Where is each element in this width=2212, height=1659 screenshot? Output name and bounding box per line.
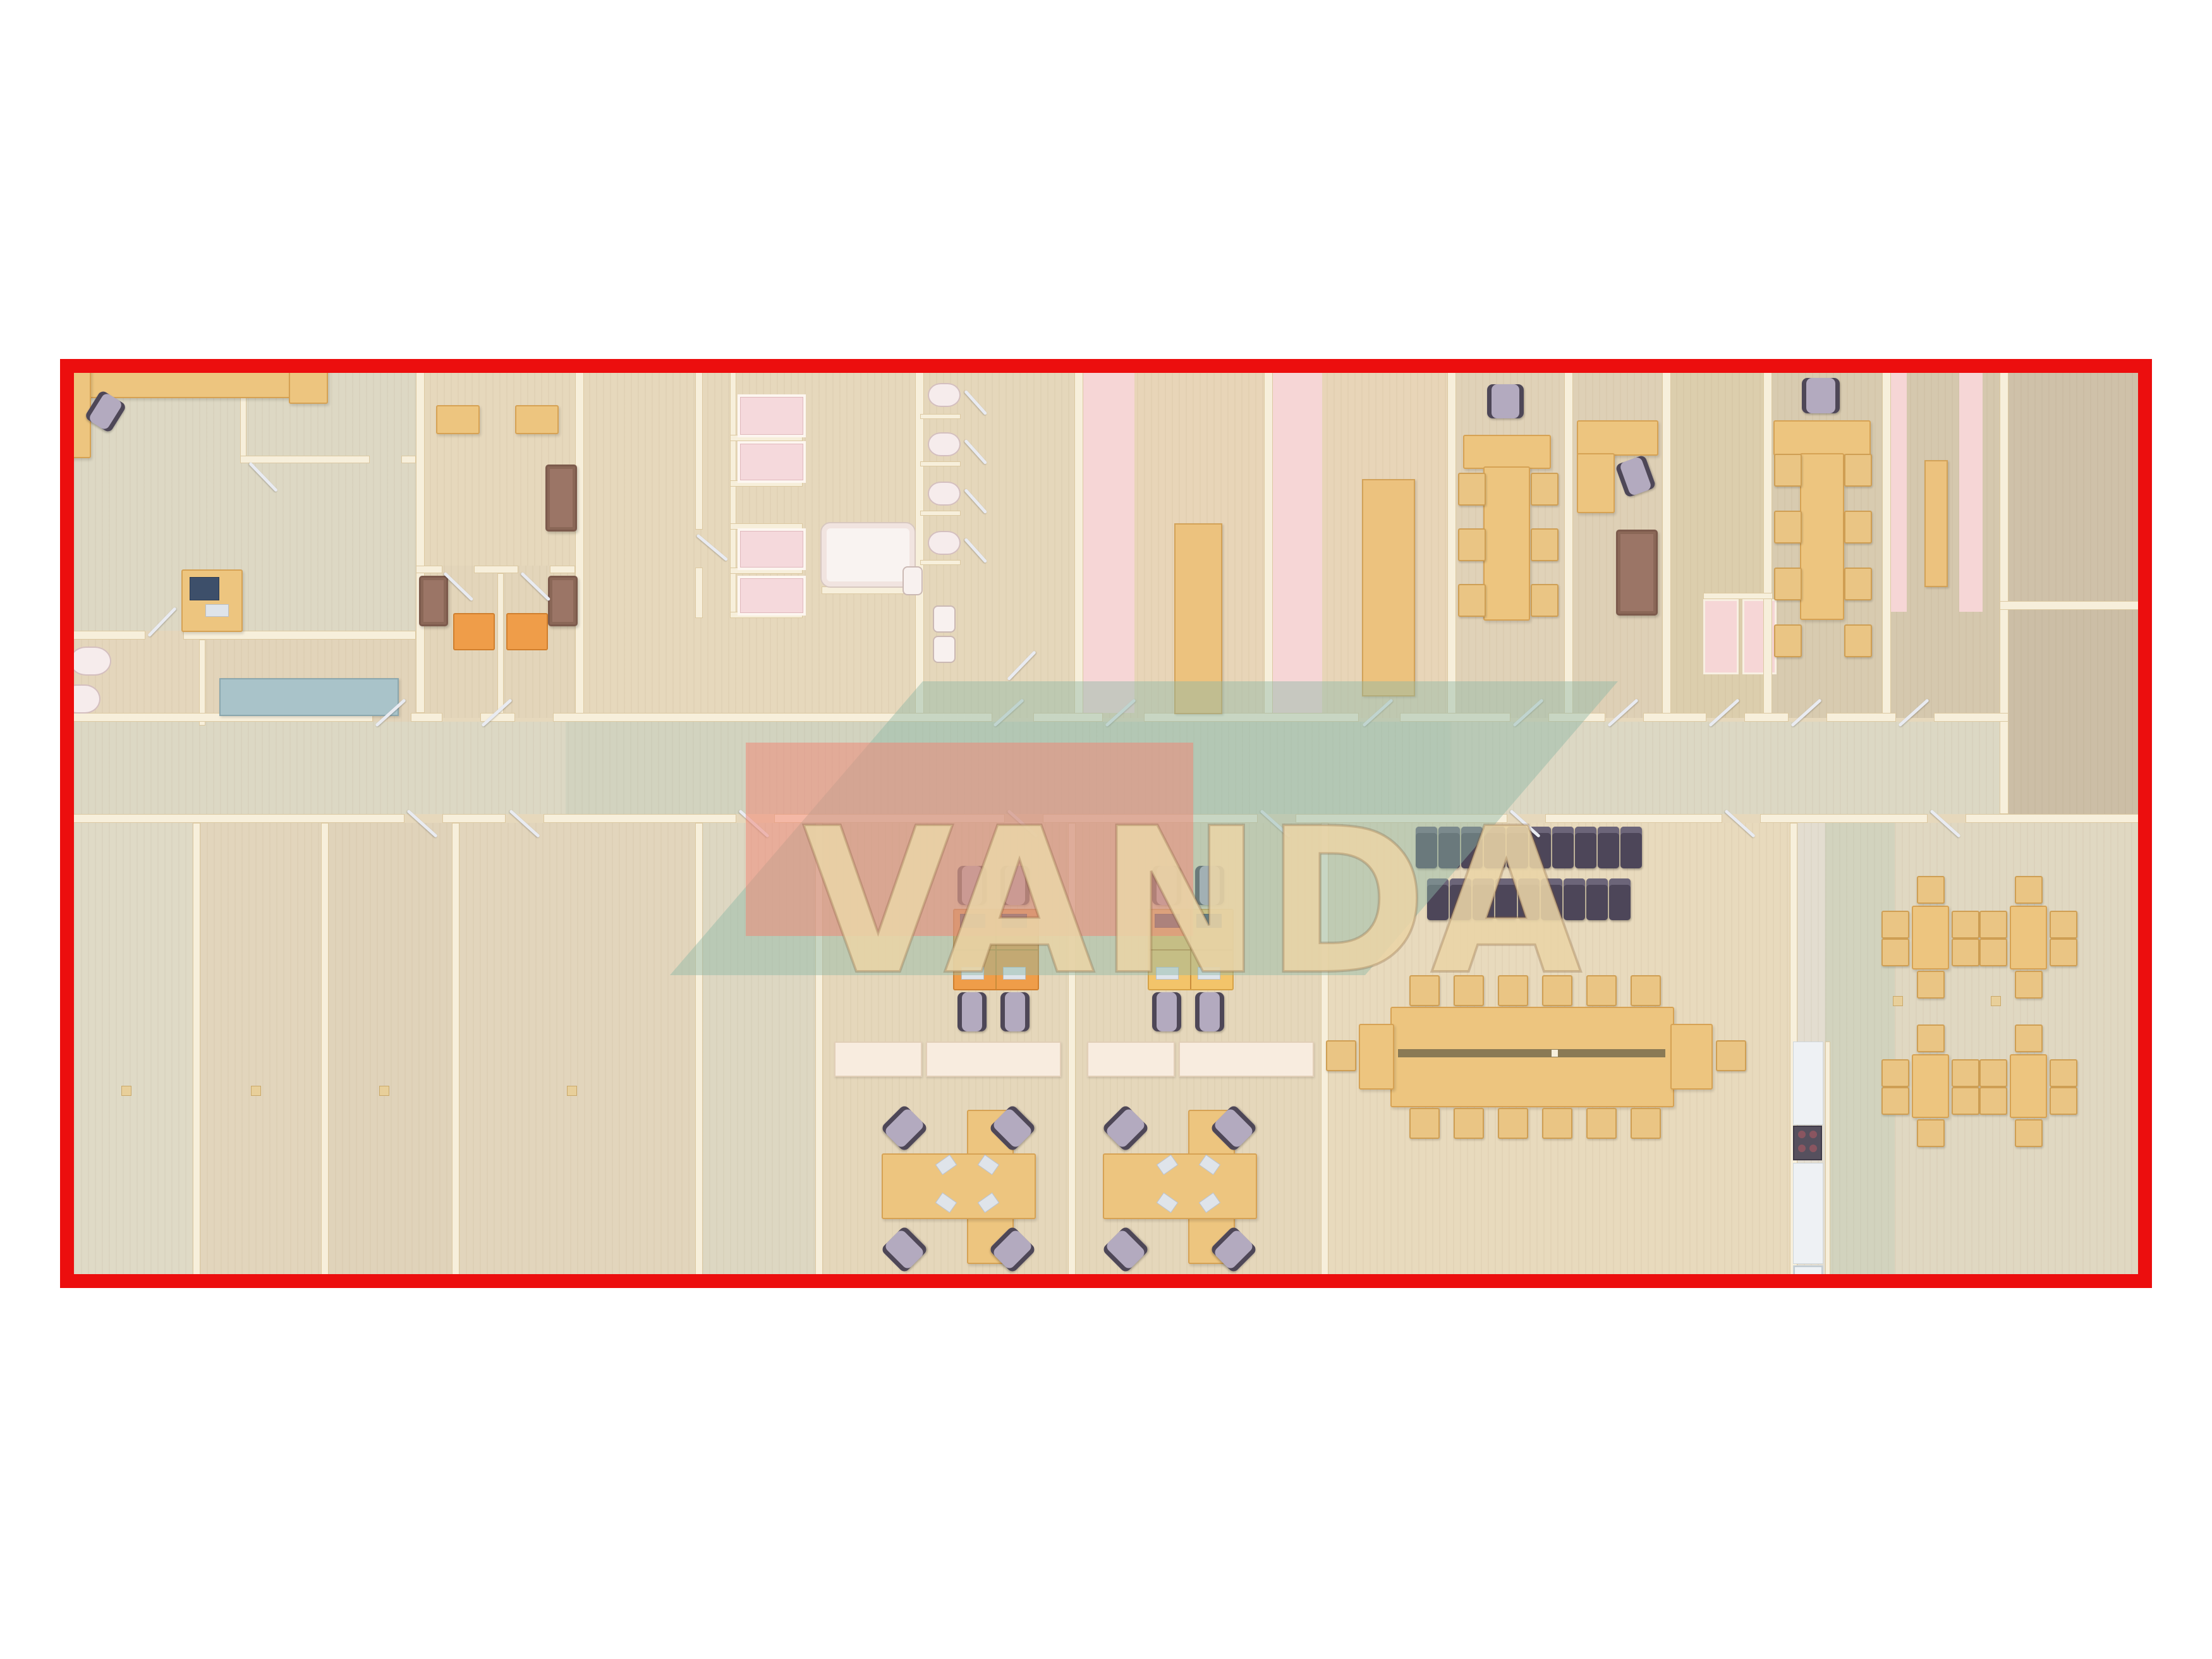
floor-marker (379, 1086, 389, 1096)
meeting-chair (1844, 511, 1872, 544)
wall (695, 568, 703, 618)
locker-mat-stripe (1082, 369, 1134, 713)
kitchen-counter (1793, 1163, 1823, 1264)
meeting-chair (1844, 454, 1872, 487)
dining-chair (1979, 911, 2007, 939)
l-desk-leg (1577, 453, 1615, 513)
wall (416, 359, 425, 713)
wall (416, 566, 442, 573)
wall (1447, 359, 1456, 718)
dining-chair (1881, 1087, 1909, 1115)
conference-chair (1542, 1108, 1572, 1139)
wall (497, 573, 504, 718)
stove-burner (1798, 1131, 1806, 1138)
wall (321, 823, 329, 1288)
dining-chair (1952, 1087, 1979, 1115)
dining-chair (1952, 939, 1979, 966)
meeting-chair (1844, 624, 1872, 657)
locker-bench (1362, 479, 1415, 696)
executive-chair (1487, 384, 1524, 418)
conference-chair (1326, 1040, 1356, 1071)
wall (1662, 359, 1671, 718)
wall (60, 814, 404, 823)
auditorium-chair (1620, 827, 1642, 868)
visitor-chair (1531, 528, 1559, 561)
wall (2000, 601, 2152, 610)
visitor-chair (1458, 473, 1486, 506)
conference-chair (1716, 1040, 1746, 1071)
dining-chair (2015, 1119, 2043, 1147)
auditorium-chair (1609, 878, 1631, 920)
shower-stall (738, 528, 806, 570)
wall (695, 359, 703, 530)
meeting-table-stem (1800, 453, 1844, 620)
wall (183, 631, 416, 640)
toilet (928, 383, 961, 407)
wall (60, 631, 145, 640)
wall (411, 713, 442, 722)
wc-stall (1703, 599, 1739, 674)
keyboard (205, 604, 229, 617)
dining-chair (1881, 1059, 1909, 1087)
cable-tray-port (1552, 1050, 1558, 1057)
shower-stall (738, 441, 806, 483)
dining-chair (1917, 1119, 1945, 1147)
conference-chair (1498, 1108, 1528, 1139)
stove-burner (1809, 1131, 1817, 1138)
visitor-chair (1458, 584, 1486, 617)
dining-chair (1917, 1024, 1945, 1052)
sink (933, 636, 956, 663)
wall (1966, 814, 2152, 823)
toilet (61, 684, 100, 714)
dining-chair (1979, 939, 2007, 966)
wall (401, 456, 416, 463)
hall-4 (452, 823, 695, 1288)
wall (1826, 713, 1896, 722)
hall-2 (193, 823, 321, 1288)
dining-chair (1881, 939, 1909, 966)
wall (550, 566, 575, 573)
work-table-teal (219, 678, 399, 716)
dining-chair (2050, 1087, 2077, 1115)
meeting-chair (1774, 624, 1802, 657)
sofa (545, 465, 577, 532)
lounge-table (515, 405, 559, 434)
sink (933, 605, 956, 633)
stove (1793, 1126, 1822, 1160)
watermark-text: VANDA (803, 801, 1586, 1002)
dining-table (1912, 1054, 1949, 1118)
shower-stall (738, 576, 806, 616)
dining-chair (2050, 911, 2077, 939)
dining-table (1912, 906, 1949, 969)
dining-chair (1917, 876, 1945, 904)
meeting-chair (1774, 568, 1802, 600)
conference-chair (1631, 975, 1661, 1006)
auditorium-chair (1586, 878, 1608, 920)
wall (730, 372, 736, 618)
wall (1825, 1042, 1830, 1288)
dining-chair (1979, 1059, 2007, 1087)
toilet (928, 482, 961, 506)
room-right-top (2000, 359, 2152, 601)
meeting-chair (1774, 454, 1802, 487)
cable-tray (1398, 1049, 1665, 1057)
wall (920, 461, 961, 466)
dining-chair (1952, 1059, 1979, 1087)
dining-table (2010, 906, 2047, 969)
shower-stall (738, 394, 806, 437)
visitor-chair (1531, 473, 1559, 506)
wall (474, 566, 518, 573)
wall (1643, 713, 1706, 722)
meeting-chair (1774, 511, 1802, 544)
conference-chair (1631, 1108, 1661, 1139)
locker-mat-stripe (1270, 369, 1322, 713)
floor-marker (1893, 996, 1903, 1006)
cross-workstation-h (1103, 1153, 1257, 1219)
sofa (1616, 530, 1658, 616)
meeting-chair (1844, 568, 1872, 600)
conference-table-end (1670, 1024, 1713, 1090)
dining-chair (2015, 876, 2043, 904)
wall (1074, 359, 1083, 718)
conference-chair (1586, 1108, 1617, 1139)
side-table (453, 613, 495, 650)
wall (920, 414, 961, 419)
cabinet (289, 365, 328, 404)
meeting-table-bar (1773, 420, 1871, 456)
visitor-chair (1531, 584, 1559, 617)
dining-table (2010, 1054, 2047, 1118)
floor-marker (567, 1086, 577, 1096)
t-desk-bar (1463, 435, 1551, 469)
wall (1882, 359, 1891, 718)
credenza (926, 1042, 1061, 1077)
floor-marker (251, 1086, 261, 1096)
wall (1934, 713, 2008, 722)
wall (2000, 359, 2008, 814)
credenza (1179, 1042, 1314, 1077)
dining-chair (1917, 971, 1945, 999)
dining-chair (1952, 911, 1979, 939)
locker-bench (1924, 460, 1948, 587)
wall (442, 814, 506, 823)
toilet (928, 432, 961, 456)
wall (1264, 359, 1273, 718)
wall (1763, 359, 1772, 718)
dining-chair (2015, 1024, 2043, 1052)
credenza (834, 1042, 922, 1077)
dining-chair (1979, 1087, 2007, 1115)
wall (240, 456, 370, 463)
wall (452, 823, 459, 1288)
bathtub (820, 522, 916, 588)
sink (902, 566, 923, 595)
floor-marker (1991, 996, 2001, 1006)
stove-burner (1798, 1145, 1806, 1152)
wall (193, 823, 200, 1288)
cross-workstation-h (882, 1153, 1036, 1219)
stove-burner (1809, 1145, 1817, 1152)
monitor (190, 577, 219, 600)
wall (920, 560, 961, 565)
dining-green-tint (1825, 823, 1895, 1288)
sofa (548, 576, 578, 626)
dining-chair (2015, 971, 2043, 999)
conference-table-end (1359, 1024, 1394, 1090)
wall (695, 823, 703, 1288)
conference-chair (1409, 1108, 1440, 1139)
dining-chair (2050, 1059, 2077, 1087)
wall (1564, 359, 1573, 718)
executive-chair (1802, 378, 1840, 413)
floor-plan: VANDA (60, 359, 2152, 1288)
l-desk (1577, 420, 1658, 456)
floor-marker (121, 1086, 131, 1096)
kitchen-counter (1793, 1042, 1823, 1125)
wall (1703, 593, 1773, 599)
dining-chair (1881, 911, 1909, 939)
room-lounge (416, 359, 575, 566)
auditorium-chair (1598, 827, 1619, 868)
wall (920, 511, 961, 516)
dining-chair (2050, 939, 2077, 966)
sofa (419, 576, 448, 626)
side-table (506, 613, 548, 650)
wall (544, 814, 736, 823)
t-desk-stem (1483, 466, 1530, 621)
lounge-table (436, 405, 480, 434)
conference-chair (1586, 975, 1617, 1006)
wall (915, 359, 924, 718)
room-right-bottom (2000, 601, 2152, 814)
credenza (1087, 1042, 1175, 1077)
locker-mat-stripe (1959, 369, 1983, 612)
toilet (70, 647, 111, 676)
toilet (928, 531, 961, 555)
hall-1 (60, 823, 193, 1288)
visitor-chair (1458, 528, 1486, 561)
refrigerator (1793, 1265, 1823, 1288)
wall (1744, 713, 1789, 722)
hall-3 (321, 823, 452, 1288)
conference-chair (1454, 1108, 1484, 1139)
wall (575, 359, 584, 718)
wall (1760, 814, 1928, 823)
